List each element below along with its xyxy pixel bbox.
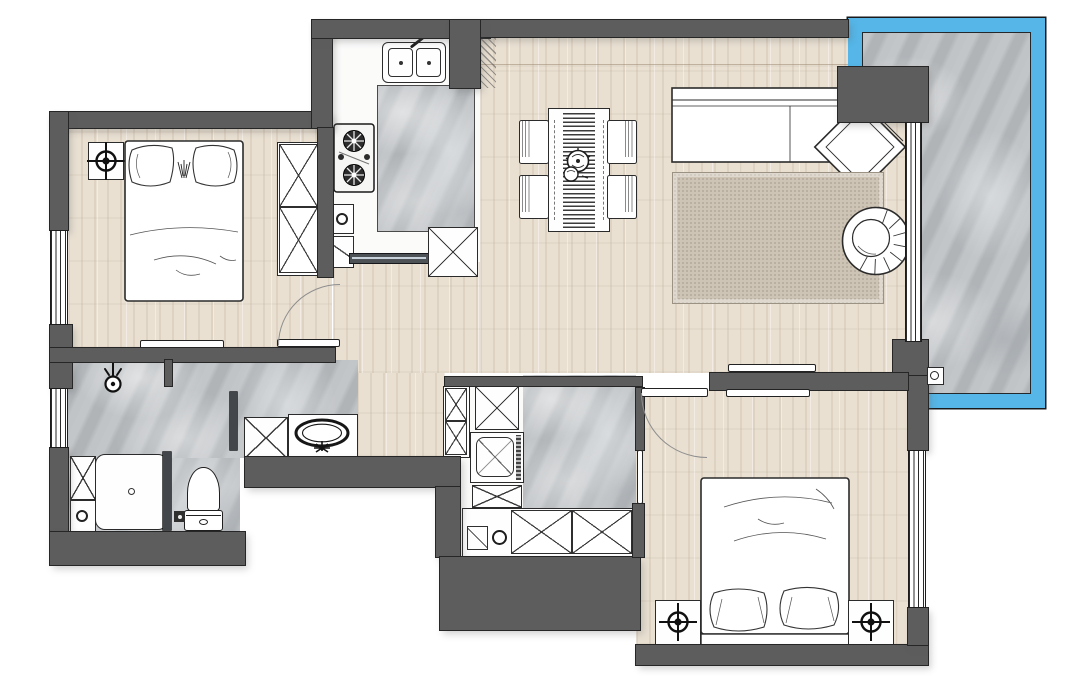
wall	[50, 112, 68, 230]
living-room-floor	[480, 37, 848, 67]
toilet	[183, 466, 225, 532]
glass-partition	[230, 392, 237, 450]
wall	[908, 608, 928, 645]
wall	[893, 340, 928, 375]
counter-cabinet	[511, 510, 572, 554]
cabinet-knob	[76, 510, 88, 522]
balcony-drain-box	[927, 367, 944, 385]
counter-cabinet	[572, 510, 632, 554]
washer-door	[476, 437, 514, 477]
cabinet-section	[445, 421, 467, 455]
utility-sink	[467, 526, 488, 550]
shower-glass-panel	[163, 452, 171, 530]
double-bed	[700, 477, 850, 647]
gas-stove	[333, 123, 375, 193]
heater-dial	[336, 213, 348, 225]
shower-tray	[95, 454, 168, 530]
lamp-symbol-icon	[849, 600, 893, 644]
wall	[245, 457, 460, 487]
floor-plan	[0, 0, 1080, 679]
wardrobe-section	[279, 207, 318, 273]
wall	[50, 348, 335, 362]
hallway-floor	[333, 262, 480, 373]
placemat-dash-line	[603, 120, 604, 220]
wall	[165, 360, 172, 386]
wall	[636, 645, 928, 665]
toilet-flush-button	[199, 519, 208, 525]
wall	[50, 112, 332, 128]
wall	[480, 20, 848, 37]
wall	[440, 557, 640, 630]
window	[50, 230, 68, 325]
toilet-tank-line	[186, 515, 221, 516]
wall	[50, 532, 245, 565]
utility-counter	[462, 508, 634, 557]
kitchen-appliance	[332, 236, 354, 268]
floor-drain	[930, 371, 939, 380]
cabinet-section	[445, 388, 467, 421]
window	[50, 388, 68, 448]
bathroom-cabinet	[70, 456, 96, 500]
window	[908, 450, 926, 608]
balcony-sliding-door	[905, 122, 922, 342]
wall-shelf	[728, 364, 816, 372]
wall	[710, 373, 908, 390]
round-lounge-chair	[838, 202, 914, 280]
wall	[50, 448, 68, 532]
sink-drain	[427, 61, 431, 65]
wall	[445, 377, 642, 386]
water-heater	[332, 204, 354, 234]
wall-shelf	[726, 389, 810, 397]
wall	[838, 67, 928, 122]
wall	[436, 487, 460, 557]
tall-cabinet	[443, 386, 470, 458]
floor-transition-line	[480, 64, 848, 65]
wall	[318, 128, 333, 277]
kitchen-counter	[377, 85, 475, 232]
vanity-counter	[288, 414, 358, 460]
storage-cabinet	[472, 485, 522, 508]
washing-machine	[470, 432, 524, 483]
drain-hole	[178, 515, 182, 519]
sink-drain	[399, 61, 403, 65]
bathroom-cabinet	[70, 500, 96, 532]
wardrobe-section	[279, 144, 318, 207]
lamp-symbol-icon	[656, 600, 700, 644]
utility-door-leaf	[637, 450, 643, 504]
kitchen-sliding-door	[350, 254, 428, 263]
double-bed	[124, 140, 244, 302]
kitchen-sink	[382, 42, 446, 83]
dining-chair	[607, 175, 637, 219]
toilet-bowl	[187, 467, 220, 512]
sink-drain	[492, 530, 507, 545]
wall	[450, 20, 480, 88]
lamp-symbol-icon	[84, 139, 128, 183]
wall	[908, 373, 928, 450]
storage-box	[475, 386, 519, 430]
vanity-cabinet	[244, 417, 288, 459]
shower-drain	[128, 488, 135, 495]
washer-panel	[516, 435, 521, 480]
dining-chair	[519, 175, 549, 219]
wall	[633, 504, 644, 557]
dining-chair	[607, 120, 637, 164]
dining-chair	[519, 120, 549, 164]
wardrobe	[277, 142, 321, 276]
table-centerpiece	[558, 146, 598, 190]
oval-basin	[289, 415, 356, 458]
placemat-dash-line	[554, 120, 555, 220]
sliding-door-glass-line	[352, 257, 426, 259]
hallway-floor	[357, 373, 445, 457]
entry-hatch-mark	[480, 38, 496, 88]
base-cabinet	[428, 227, 478, 277]
shower-head-icon	[97, 357, 131, 397]
floor-drain	[174, 511, 185, 522]
utility-floor	[523, 375, 636, 508]
